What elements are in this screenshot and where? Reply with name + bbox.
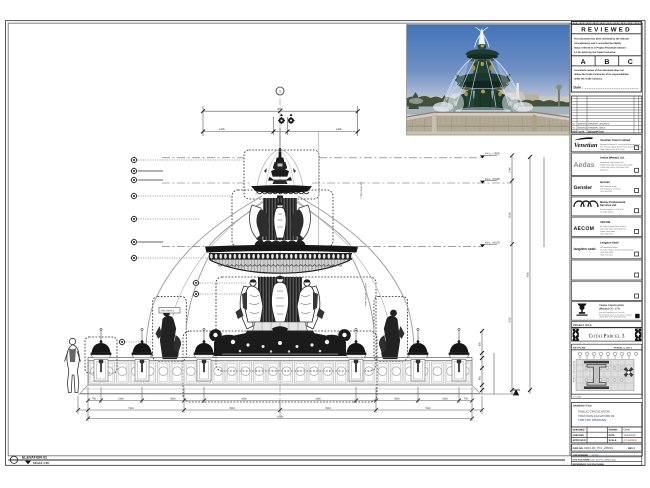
svg-text:Consultant review of this docu: Consultant review of this document does … — [574, 69, 624, 72]
svg-text:REVIEWED: REVIEWED — [581, 27, 632, 34]
svg-text:-: - — [595, 434, 596, 437]
svg-text:1495: 1495 — [336, 128, 342, 131]
svg-text:1760: 1760 — [509, 167, 512, 173]
svg-text:JOB NUMBER: JOB NUMBER — [573, 454, 589, 457]
svg-text:AECOM: AECOM — [600, 221, 611, 224]
svg-text:SCALE 1:50: SCALE 1:50 — [33, 461, 49, 465]
svg-text:REFERENCE CAD FILE NAME: REFERENCE CAD FILE NAME — [573, 463, 605, 466]
svg-text:Gensler: Gensler — [600, 181, 610, 184]
svg-text:PUBLIC CIRCULATION: PUBLIC CIRCULATION — [578, 409, 610, 413]
svg-text:This document has been reviewe: This document has been reviewed by the r… — [574, 38, 629, 41]
svg-text:450: 450 — [479, 341, 482, 346]
svg-text:REV: REV — [572, 130, 577, 133]
svg-text:Gensler: Gensler — [574, 185, 593, 191]
svg-text:Venetian: Venetian — [574, 142, 598, 149]
svg-text:B: B — [604, 59, 609, 66]
svg-text:t 852 2893 1551: t 852 2893 1551 — [600, 233, 613, 236]
svg-text:KEY PLAN: KEY PLAN — [573, 346, 585, 349]
svg-text:Aedas (Macau) Ltd.: Aedas (Macau) Ltd. — [600, 157, 625, 160]
svg-text:Venetian Orient Limited: Venetian Orient Limited — [600, 139, 630, 142]
svg-text:status referred to in Project: status referred to in Project Procedure … — [574, 46, 626, 49]
svg-text:2554: 2554 — [229, 407, 235, 410]
svg-text:DATE: DATE — [609, 434, 616, 437]
svg-text:3090: 3090 — [277, 108, 283, 111]
svg-text:4490: 4490 — [241, 398, 247, 401]
svg-text:AS SHOWN: AS SHOWN — [624, 439, 637, 442]
svg-text:F.F.L +6780: F.F.L +6780 — [485, 177, 500, 181]
svg-text:FIRE NIPPLE: FIRE NIPPLE — [161, 310, 175, 313]
svg-text:Aedas: Aedas — [574, 161, 595, 169]
svg-text:4750: 4750 — [509, 317, 512, 323]
svg-text:11434: 11434 — [277, 415, 284, 418]
svg-text:AECOM: AECOM — [574, 226, 595, 232]
svg-text:1495: 1495 — [219, 128, 225, 131]
svg-text:3540: 3540 — [394, 398, 400, 401]
svg-text:ELEVATION 01: ELEVATION 01 — [22, 456, 47, 460]
svg-text:GENERAL UPDATED: GENERAL UPDATED — [588, 122, 610, 125]
svg-text:C: C — [628, 59, 633, 66]
svg-text:Yaulee Construction: Yaulee Construction — [599, 304, 624, 307]
svg-text:SCALE: SCALE — [609, 439, 617, 442]
svg-text:01: 01 — [572, 122, 575, 125]
svg-text:PROJECT TITLE: PROJECT TITLE — [573, 324, 592, 327]
svg-text:COTAI PARCEL 3: COTAI PARCEL 3 — [589, 334, 625, 340]
svg-text:Consultants(s) and is accorded: Consultants(s) and is accorded the fidel… — [574, 42, 622, 45]
svg-text:REV 0: REV 0 — [628, 447, 636, 450]
svg-text:DRAWING TITLE: DRAWING TITLE — [573, 404, 592, 407]
svg-text:CAD FILE NAME 3101-00_PCI_ZR00: CAD FILE NAME 3101-00_PCI_ZR001.dwg — [573, 458, 617, 461]
svg-text:CHECKED: CHECKED — [573, 434, 585, 437]
svg-text:0 2.5 5M: 0 2.5 5M — [573, 396, 581, 399]
svg-text:f 852 2576 0416: f 852 2576 0416 — [600, 254, 613, 257]
svg-text:06/04/16: 06/04/16 — [578, 122, 587, 125]
svg-text:Services Ltd.: Services Ltd. — [600, 204, 617, 207]
svg-text:A: A — [581, 59, 586, 66]
svg-text:A1: A1 — [572, 126, 575, 129]
svg-text:APPROVED: APPROVED — [573, 439, 586, 442]
svg-text:FOR FRP DRAWING: FOR FRP DRAWING — [578, 418, 607, 422]
svg-text:900: 900 — [479, 375, 482, 380]
svg-text:CHAD: CHAD — [624, 429, 631, 432]
svg-text:F.F.L +4750: F.F.L +4750 — [485, 240, 500, 244]
svg-text:4490: 4490 — [315, 398, 321, 401]
svg-text:Date :: Date : — [574, 86, 583, 90]
svg-text:2030: 2030 — [509, 212, 512, 218]
svg-text:t 415.433.3700: t 415.433.3700 — [600, 190, 612, 193]
svg-text:1: 1 — [279, 89, 282, 94]
svg-text:Langdon Seah: Langdon Seah — [600, 242, 619, 245]
svg-text:7540: 7540 — [425, 407, 431, 410]
svg-text:13/04/2016: 13/04/2016 — [624, 434, 637, 437]
svg-text:(Macau) CO. LTD.: (Macau) CO. LTD. — [599, 308, 621, 311]
svg-text:31123: 31123 — [592, 454, 599, 457]
svg-text:3540: 3540 — [170, 398, 176, 401]
svg-text:2390: 2390 — [118, 398, 124, 401]
svg-text:750: 750 — [464, 398, 469, 401]
svg-text:t (853) 2855 5525 f (853) 28: t (853) 2855 5525 f (853) 2857 5196 — [599, 316, 626, 319]
svg-text:12 andar, Macau: 12 andar, Macau — [600, 211, 613, 214]
svg-text:under the Trade Contract.: under the Trade Contract. — [574, 78, 603, 81]
svg-text:FOUNTAIN ELEVATION 01: FOUNTAIN ELEVATION 01 — [578, 414, 615, 418]
svg-text:GENERAL ISSUE: GENERAL ISSUE — [588, 126, 606, 129]
svg-text:F.F.L +7600: F.F.L +7600 — [485, 152, 500, 156]
svg-text:DWG NO.: DWG NO. — [573, 447, 584, 450]
svg-text:2390: 2390 — [442, 398, 448, 401]
svg-text:DATE: DATE — [579, 130, 586, 133]
svg-text:2554: 2554 — [325, 407, 331, 410]
svg-text:TYPE FINIAL P.C.: TYPE FINIAL P.C. — [360, 181, 363, 199]
svg-text:03/03/16: 03/03/16 — [578, 126, 587, 129]
svg-text:-: - — [595, 439, 596, 442]
svg-text:7600: 7600 — [527, 272, 530, 278]
svg-text:PARCEL 1, LOT 3: PARCEL 1, LOT 3 — [614, 346, 633, 349]
svg-text:relieve the Trade Contractor o: relieve the Trade Contractor of its resp… — [574, 73, 630, 76]
svg-text:DESIGNED: DESIGNED — [573, 429, 585, 432]
svg-text:langdon·seah: langdon·seah — [574, 247, 596, 251]
svg-text:DESCRIPTION: DESCRIPTION — [588, 130, 604, 133]
svg-text:5.4 for action by the Trade Co: 5.4 for action by the Trade Contractor. — [574, 51, 616, 54]
svg-text:7540: 7540 — [128, 407, 134, 410]
svg-text:PUBLIC CIRCULATION: PUBLIC CIRCULATION — [572, 360, 575, 382]
svg-text:aedas.com: aedas.com — [600, 169, 609, 172]
svg-text:Taipa, Macau SAR, P.R. China: Taipa, Macau SAR, P.R. China — [600, 148, 624, 151]
svg-text:DRAWN: DRAWN — [609, 429, 618, 432]
svg-text:3101-00_PCI_ZR001: 3101-00_PCI_ZR001 — [584, 446, 614, 450]
svg-text:750: 750 — [92, 398, 97, 401]
